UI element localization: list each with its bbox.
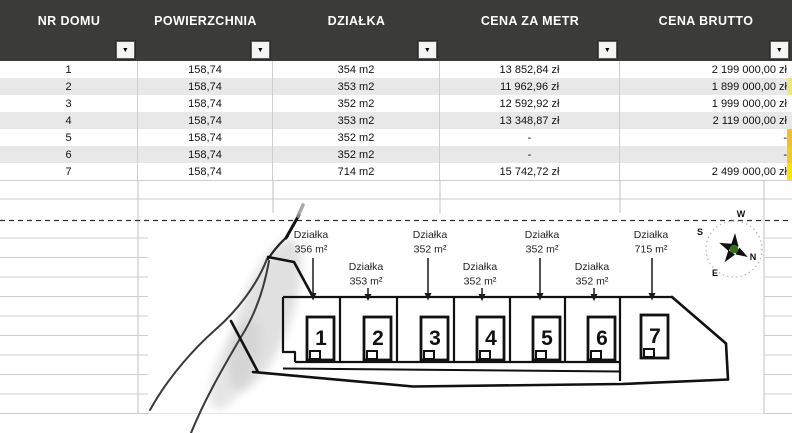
compass-letter-n: N (750, 252, 757, 262)
table-cell: 13 852,84 zł (440, 61, 620, 78)
column-header-label: CENA ZA METR (481, 14, 579, 28)
house-number: 3 (429, 327, 441, 350)
filter-dropdown-icon: ▼ (122, 47, 129, 54)
svg-text:356 m²: 356 m² (295, 244, 328, 256)
table-cell: 158,74 (138, 112, 273, 129)
table-row: 4 158,74 353 m2 13 348,87 zł 2 119 000,0… (0, 112, 792, 129)
table-cell: 1 (0, 61, 138, 78)
table-cell: 352 m2 (273, 95, 440, 112)
filter-dropdown-nr-domu[interactable]: ▼ (116, 41, 135, 59)
spreadsheet-window: NR DOMU ▼ POWIERZCHNIA ▼ DZIAŁKA ▼ CENA … (0, 0, 792, 433)
svg-text:Działka: Działka (463, 261, 498, 273)
table-cell: 7 (0, 163, 138, 180)
table-cell: 158,74 (138, 78, 273, 95)
table-row: 2 158,74 353 m2 11 962,96 zł 1 899 000,0… (0, 78, 792, 95)
compass-letter-s: S (697, 227, 703, 237)
table-cell: 158,74 (138, 146, 273, 163)
svg-text:Działka: Działka (634, 229, 669, 241)
house-door (591, 351, 601, 359)
column-header-label: NR DOMU (38, 14, 101, 28)
svg-text:352 m²: 352 m² (576, 276, 609, 288)
column-header-nr-domu: NR DOMU ▼ (0, 0, 138, 61)
table-cell: 158,74 (138, 61, 273, 78)
filter-dropdown-cena-brutto[interactable]: ▼ (770, 41, 789, 59)
table-cell: 2 199 000,00 zł (620, 61, 792, 78)
table-cell: 13 348,87 zł (440, 112, 620, 129)
svg-text:352 m²: 352 m² (414, 244, 447, 256)
table-row: 5 158,74 352 m2 - - (0, 129, 792, 146)
filter-dropdown-powierzchnia[interactable]: ▼ (251, 41, 270, 59)
house-number: 1 (315, 327, 327, 350)
table-cell: 714 m2 (273, 163, 440, 180)
table-row: 3 158,74 352 m2 12 592,92 zł 1 999 000,0… (0, 95, 792, 112)
highlight-strip (787, 163, 792, 180)
house-door (536, 351, 546, 359)
table-cell: 1 899 000,00 zł (620, 78, 792, 95)
house-door (644, 349, 654, 357)
column-header-cena-za-metr: CENA ZA METR ▼ (440, 0, 620, 61)
table-cell: 4 (0, 112, 138, 129)
table-cell: 2 499 000,00 zł (620, 163, 792, 180)
table-cell: 158,74 (138, 95, 273, 112)
compass-letter-e: E (712, 268, 718, 278)
site-plan-image: 1 2 3 4 5 (0, 180, 792, 433)
column-header-powierzchnia: POWIERZCHNIA ▼ (138, 0, 273, 61)
compass-center-dot (730, 245, 739, 254)
highlight-strip (787, 78, 792, 95)
table-cell: 11 962,96 zł (440, 78, 620, 95)
house-number: 6 (596, 327, 608, 350)
highlight-strip (787, 129, 792, 146)
filter-dropdown-icon: ▼ (604, 47, 611, 54)
house-door (424, 351, 434, 359)
column-header-dzialka: DZIAŁKA ▼ (273, 0, 440, 61)
svg-text:Działka: Działka (413, 229, 448, 241)
price-table: NR DOMU ▼ POWIERZCHNIA ▼ DZIAŁKA ▼ CENA … (0, 0, 792, 181)
table-cell: 1 999 000,00 zł (620, 95, 792, 112)
table-cell: 12 592,92 zł (440, 95, 620, 112)
table-cell: 158,74 (138, 129, 273, 146)
svg-text:352 m²: 352 m² (464, 276, 497, 288)
house-5: 5 (533, 317, 560, 360)
table-cell: 6 (0, 146, 138, 163)
filter-dropdown-dzialka[interactable]: ▼ (418, 41, 437, 59)
house-1: 1 (307, 317, 334, 360)
house-door (480, 351, 490, 359)
table-body: 1 158,74 354 m2 13 852,84 zł 2 199 000,0… (0, 61, 792, 181)
filter-dropdown-cena-za-metr[interactable]: ▼ (598, 41, 617, 59)
table-cell: 15 742,72 zł (440, 163, 620, 180)
svg-text:715 m²: 715 m² (635, 244, 668, 256)
house-door (310, 351, 320, 359)
house-number: 5 (541, 327, 553, 350)
column-header-label: CENA BRUTTO (659, 14, 754, 28)
house-4: 4 (477, 317, 504, 360)
table-cell: 354 m2 (273, 61, 440, 78)
table-row: 6 158,74 352 m2 - - (0, 146, 792, 163)
svg-text:352 m²: 352 m² (526, 244, 559, 256)
svg-text:Działka: Działka (525, 229, 560, 241)
highlight-strip (787, 146, 792, 163)
compass-letter-w: W (737, 209, 746, 219)
column-header-label: POWIERZCHNIA (154, 14, 257, 28)
table-cell: - (620, 129, 792, 146)
table-row: 1 158,74 354 m2 13 852,84 zł 2 199 000,0… (0, 61, 792, 78)
table-cell: 5 (0, 129, 138, 146)
table-cell: 3 (0, 95, 138, 112)
table-cell: 353 m2 (273, 78, 440, 95)
column-header-label: DZIAŁKA (328, 14, 386, 28)
house-number: 2 (372, 327, 384, 350)
table-cell: - (440, 146, 620, 163)
table-row: 7 158,74 714 m2 15 742,72 zł 2 499 000,0… (0, 163, 792, 180)
table-cell: - (440, 129, 620, 146)
house-number: 4 (485, 327, 497, 350)
house-door (367, 351, 377, 359)
filter-dropdown-icon: ▼ (424, 47, 431, 54)
svg-text:Działka: Działka (349, 261, 384, 273)
house-7: 7 (641, 315, 668, 358)
svg-text:Działka: Działka (294, 229, 329, 241)
filter-dropdown-icon: ▼ (776, 47, 783, 54)
table-cell: 353 m2 (273, 112, 440, 129)
house-3: 3 (421, 317, 448, 360)
house-2: 2 (364, 317, 391, 360)
house-6: 6 (588, 317, 615, 360)
svg-text:Działka: Działka (575, 261, 610, 273)
table-cell: 158,74 (138, 163, 273, 180)
column-header-cena-brutto: CENA BRUTTO ▼ (620, 0, 792, 61)
table-header-row: NR DOMU ▼ POWIERZCHNIA ▼ DZIAŁKA ▼ CENA … (0, 0, 792, 61)
filter-dropdown-icon: ▼ (257, 47, 264, 54)
table-cell: 2 119 000,00 zł (620, 112, 792, 129)
table-cell: 352 m2 (273, 146, 440, 163)
table-cell: - (620, 146, 792, 163)
table-cell: 2 (0, 78, 138, 95)
svg-text:353 m²: 353 m² (350, 276, 383, 288)
table-cell: 352 m2 (273, 129, 440, 146)
house-number: 7 (649, 325, 661, 348)
